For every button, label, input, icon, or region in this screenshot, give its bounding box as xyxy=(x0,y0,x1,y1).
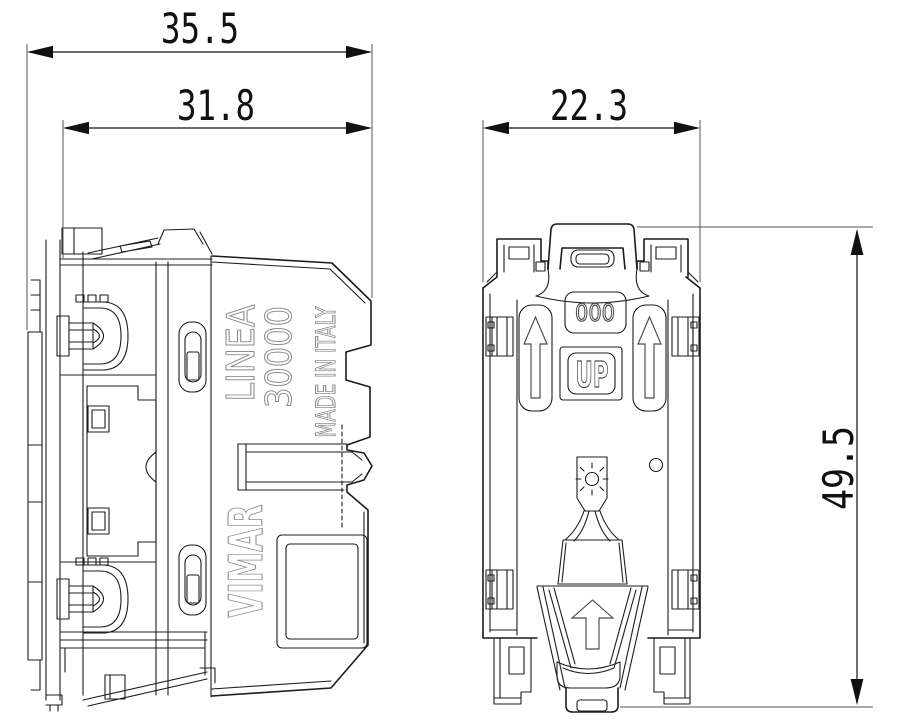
side-label-brand: VIMAR xyxy=(219,505,273,618)
shoulder-right-detail xyxy=(640,245,698,282)
lamp-icon xyxy=(576,463,608,495)
arrowhead-right-icon xyxy=(346,46,372,58)
side-recess-outer xyxy=(277,535,367,648)
claw-pocket-top xyxy=(84,302,128,370)
latch-top-right xyxy=(672,317,699,356)
dim-overall-width: 35.5 xyxy=(27,4,372,330)
shoulder-right xyxy=(637,239,700,288)
dim-inner-width: 31.8 xyxy=(63,81,372,258)
arrowhead-left-icon xyxy=(27,46,53,58)
side-center-block xyxy=(87,386,156,556)
up-arrow-left-badge xyxy=(519,305,552,411)
lamp-tag-prongs xyxy=(565,511,619,541)
dimensions: 35.5 31.8 22.3 49.5 xyxy=(27,4,873,707)
up-arrow-right-badge xyxy=(633,305,666,411)
comb-detail-top xyxy=(76,295,108,302)
dim-label-module-width: 22.3 xyxy=(550,81,628,130)
arrowhead-right-icon xyxy=(674,122,700,134)
lamp-circle xyxy=(586,473,599,486)
latch-bottom-right xyxy=(672,570,699,609)
bottom-clip xyxy=(537,586,648,690)
up-arrow-left-icon xyxy=(524,317,547,398)
clip-arrow-icon xyxy=(572,600,613,649)
pilot-hole xyxy=(650,459,663,472)
rear-view: 000 UP xyxy=(483,224,700,712)
lamp-rays xyxy=(576,463,608,495)
technical-drawing: LINEA 30000 MADE IN ITALY VIMAR 000 UP xyxy=(0,0,900,720)
dim-module-width: 22.3 xyxy=(483,81,700,282)
claw-pin-bottom-icon xyxy=(57,579,104,619)
side-view: LINEA 30000 MADE IN ITALY VIMAR xyxy=(28,228,372,711)
claw-pocket-bottom xyxy=(84,565,128,633)
side-frame-plate xyxy=(46,228,102,711)
technical-drawing-page: LINEA 30000 MADE IN ITALY VIMAR 000 UP xyxy=(0,0,900,720)
shoulder-left-detail xyxy=(487,245,545,282)
top-tab xyxy=(548,224,637,269)
side-label-series: LINEA xyxy=(219,304,263,401)
mounting-slot-top-window xyxy=(187,352,199,380)
side-flange-bar xyxy=(238,444,362,490)
bottom-tab-window xyxy=(577,700,607,711)
mounting-slot-bottom-window xyxy=(187,575,199,603)
arrowhead-right-icon xyxy=(346,122,372,134)
arrowhead-left-icon xyxy=(63,122,89,134)
leg-left xyxy=(494,638,531,704)
code-label: 000 xyxy=(575,299,615,327)
dim-label-inner-width: 31.8 xyxy=(177,81,255,130)
arrowhead-bottom-icon xyxy=(851,679,864,705)
arrowhead-left-icon xyxy=(483,122,509,134)
leg-right xyxy=(654,638,690,704)
clip-mouth xyxy=(557,662,620,688)
dim-label-overall-width: 35.5 xyxy=(161,4,239,53)
up-arrow-right-icon xyxy=(638,317,661,398)
dim-height: 49.5 xyxy=(620,227,873,707)
up-label: UP xyxy=(576,355,609,396)
side-label-origin: MADE IN ITALY xyxy=(311,306,342,437)
dim-label-height: 49.5 xyxy=(814,426,863,510)
top-tab-window xyxy=(576,254,609,264)
center-block xyxy=(558,540,627,584)
side-left-strip xyxy=(28,280,42,690)
side-recess-inner xyxy=(286,544,358,639)
neck-curves xyxy=(536,269,649,303)
claw-pin-top-icon xyxy=(57,316,104,356)
side-label-model: 30000 xyxy=(259,306,300,408)
arrowhead-top-icon xyxy=(851,229,864,255)
side-middle-column xyxy=(156,256,211,697)
shoulder-left xyxy=(483,239,548,288)
